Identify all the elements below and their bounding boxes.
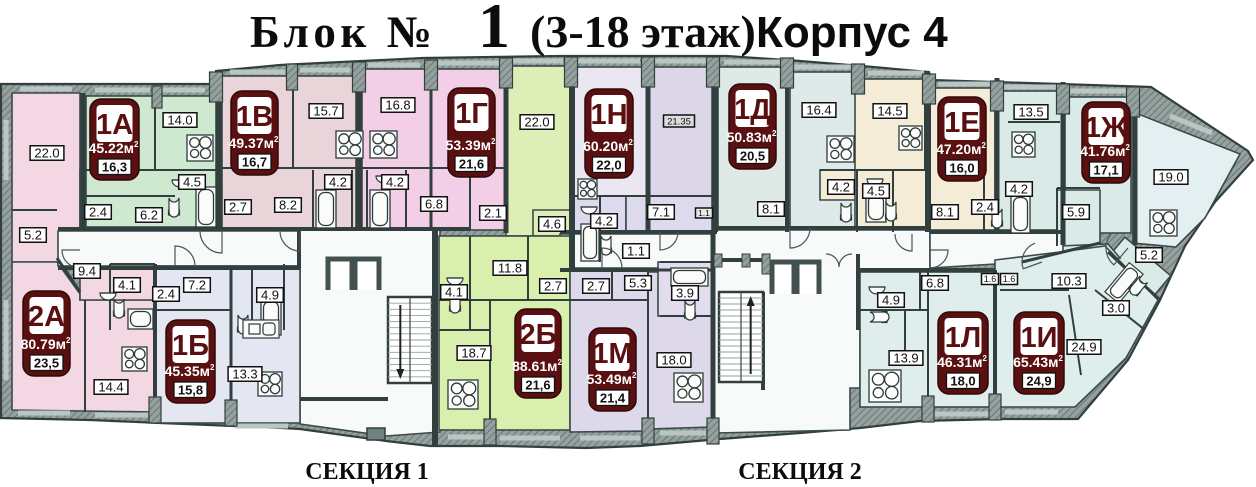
svg-text:60.20м2: 60.20м2 <box>583 138 633 154</box>
svg-text:1В: 1В <box>236 101 273 133</box>
svg-text:СЕКЦИЯ 2: СЕКЦИЯ 2 <box>738 459 861 485</box>
svg-text:4.5: 4.5 <box>867 184 885 199</box>
svg-text:8.2: 8.2 <box>279 198 297 213</box>
svg-text:15,8: 15,8 <box>178 383 203 398</box>
svg-text:1Б: 1Б <box>172 330 209 362</box>
svg-text:1.6: 1.6 <box>1003 274 1016 284</box>
svg-text:65.43м2: 65.43м2 <box>1013 354 1063 370</box>
svg-text:6.8: 6.8 <box>926 276 944 291</box>
svg-text:Корпус 4: Корпус 4 <box>756 8 948 57</box>
svg-text:23,5: 23,5 <box>34 356 59 371</box>
svg-text:24,9: 24,9 <box>1026 374 1051 389</box>
svg-text:21,4: 21,4 <box>600 391 626 406</box>
svg-text:53.39м2: 53.39м2 <box>446 137 496 153</box>
svg-text:17,1: 17,1 <box>1093 163 1118 178</box>
svg-text:16,3: 16,3 <box>102 160 127 175</box>
svg-text:1: 1 <box>478 0 510 61</box>
svg-text:1.1: 1.1 <box>627 244 645 259</box>
svg-text:22.0: 22.0 <box>34 146 59 161</box>
svg-text:7.2: 7.2 <box>188 278 206 293</box>
svg-text:16,0: 16,0 <box>949 161 974 176</box>
svg-text:1И: 1И <box>1021 322 1058 354</box>
svg-text:4.2: 4.2 <box>832 180 850 195</box>
svg-text:3.0: 3.0 <box>1107 301 1125 316</box>
svg-text:4.9: 4.9 <box>882 293 900 308</box>
svg-text:3.9: 3.9 <box>676 286 694 301</box>
svg-text:4.2: 4.2 <box>386 175 404 190</box>
svg-text:2.4: 2.4 <box>976 200 994 215</box>
svg-text:88.61м2: 88.61м2 <box>512 358 562 374</box>
svg-text:1.1: 1.1 <box>698 208 710 218</box>
svg-text:16.4: 16.4 <box>806 103 831 118</box>
svg-text:24.9: 24.9 <box>1071 340 1096 355</box>
svg-text:4.1: 4.1 <box>445 285 463 300</box>
svg-text:18.0: 18.0 <box>661 353 686 368</box>
svg-text:8.1: 8.1 <box>936 205 954 220</box>
svg-text:45.22м2: 45.22м2 <box>89 140 139 156</box>
svg-text:6.2: 6.2 <box>140 208 158 223</box>
svg-text:5.9: 5.9 <box>1067 205 1085 220</box>
svg-text:14.5: 14.5 <box>877 104 902 119</box>
svg-text:2.7: 2.7 <box>587 279 605 294</box>
svg-text:16.8: 16.8 <box>385 98 410 113</box>
svg-text:41.76м2: 41.76м2 <box>1080 143 1130 159</box>
svg-text:15.7: 15.7 <box>313 104 338 119</box>
svg-text:4.2: 4.2 <box>329 175 347 190</box>
svg-text:2.7: 2.7 <box>229 200 247 215</box>
svg-text:22.0: 22.0 <box>524 115 549 130</box>
svg-text:50.83м2: 50.83м2 <box>727 129 777 145</box>
svg-text:4.2: 4.2 <box>1010 182 1028 197</box>
svg-text:1Г: 1Г <box>455 98 488 130</box>
svg-text:49.37м2: 49.37м2 <box>229 135 279 151</box>
svg-text:4.5: 4.5 <box>183 175 201 190</box>
svg-text:1Д: 1Д <box>734 94 771 126</box>
svg-text:14.4: 14.4 <box>98 380 123 395</box>
svg-text:(3-18 этаж): (3-18 этаж) <box>530 6 756 57</box>
svg-text:2.4: 2.4 <box>89 205 107 220</box>
svg-text:22,0: 22,0 <box>596 158 621 173</box>
svg-text:1Н: 1Н <box>590 99 627 131</box>
svg-text:16,7: 16,7 <box>242 155 267 170</box>
svg-text:2.4: 2.4 <box>157 287 175 302</box>
svg-text:53.49м2: 53.49м2 <box>587 371 637 387</box>
svg-text:13.3: 13.3 <box>232 367 257 382</box>
svg-text:11.8: 11.8 <box>498 261 522 276</box>
svg-text:21,6: 21,6 <box>459 157 484 172</box>
svg-text:4.6: 4.6 <box>543 217 561 232</box>
svg-text:7.1: 7.1 <box>652 205 670 220</box>
svg-text:1Е: 1Е <box>944 107 979 139</box>
svg-text:18.7: 18.7 <box>461 346 486 361</box>
svg-text:21.35: 21.35 <box>667 116 691 127</box>
svg-text:4.1: 4.1 <box>118 278 136 293</box>
svg-text:5.2: 5.2 <box>1140 248 1158 263</box>
svg-text:1М: 1М <box>592 338 632 370</box>
svg-text:5.2: 5.2 <box>24 228 42 243</box>
svg-text:13.5: 13.5 <box>1018 105 1043 120</box>
svg-text:4.9: 4.9 <box>261 288 279 303</box>
svg-text:5.3: 5.3 <box>629 276 647 291</box>
svg-text:9.4: 9.4 <box>78 264 96 279</box>
svg-text:80.79м2: 80.79м2 <box>21 336 71 352</box>
svg-text:13.9: 13.9 <box>893 351 918 366</box>
svg-text:10.3: 10.3 <box>1056 274 1081 289</box>
svg-text:СЕКЦИЯ 1: СЕКЦИЯ 1 <box>305 459 428 485</box>
svg-text:Блок №: Блок № <box>250 7 436 57</box>
svg-text:18,0: 18,0 <box>950 374 975 389</box>
svg-text:19.0: 19.0 <box>1158 170 1183 185</box>
svg-text:8.1: 8.1 <box>762 202 780 217</box>
svg-text:45.35м2: 45.35м2 <box>165 363 215 379</box>
svg-text:20,5: 20,5 <box>740 149 765 164</box>
svg-text:1Ж: 1Ж <box>1085 112 1128 144</box>
svg-text:47.20м2: 47.20м2 <box>936 141 986 157</box>
svg-text:1А: 1А <box>96 109 133 141</box>
svg-text:1.6: 1.6 <box>984 274 997 284</box>
svg-text:2.7: 2.7 <box>544 279 562 294</box>
svg-text:6.8: 6.8 <box>425 197 443 212</box>
svg-text:1Л: 1Л <box>945 322 981 354</box>
svg-text:14.0: 14.0 <box>167 113 192 128</box>
svg-text:4.2: 4.2 <box>595 214 613 229</box>
svg-text:46.31м2: 46.31м2 <box>937 354 987 370</box>
svg-text:2Б: 2Б <box>520 319 557 351</box>
svg-text:21,6: 21,6 <box>525 378 550 393</box>
svg-text:2.1: 2.1 <box>484 206 502 221</box>
svg-text:2А: 2А <box>28 301 65 333</box>
